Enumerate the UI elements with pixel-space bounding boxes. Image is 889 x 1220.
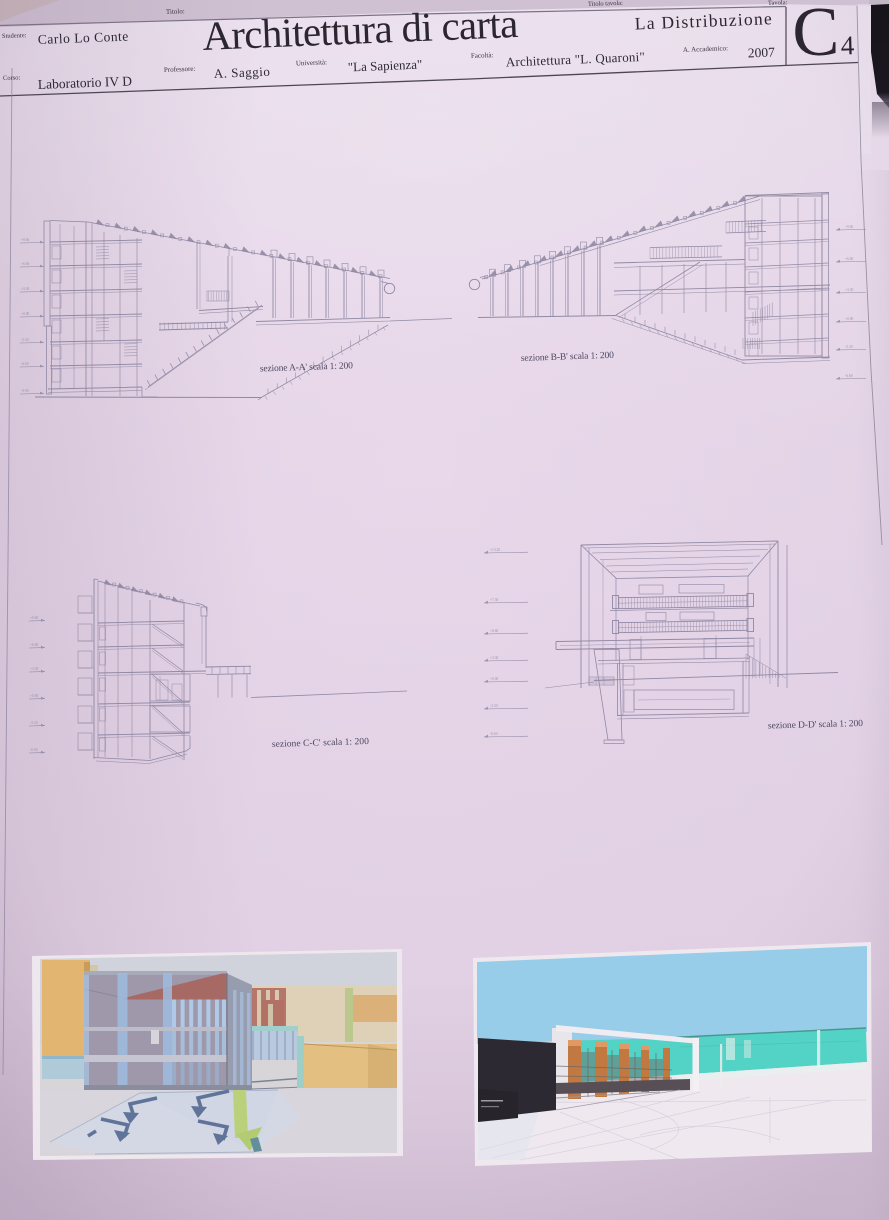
svg-text:-3.30: -3.30 <box>845 345 853 349</box>
svg-text:-6.60: -6.60 <box>490 732 498 736</box>
svg-text:+9.60: +9.60 <box>30 616 39 620</box>
svg-text:-3.30: -3.30 <box>490 704 498 708</box>
svg-text:+6.60: +6.60 <box>30 643 39 647</box>
svg-text:Tavola:: Tavola: <box>768 0 788 7</box>
svg-text:Corso:: Corso: <box>3 74 21 82</box>
svg-text:Titolo:: Titolo: <box>166 7 185 16</box>
svg-text:4: 4 <box>840 30 855 60</box>
svg-text:C: C <box>791 0 840 71</box>
svg-text:Titolo tavola:: Titolo tavola: <box>588 0 623 8</box>
svg-text:+0.00: +0.00 <box>845 317 854 321</box>
svg-text:+6.60: +6.60 <box>21 262 30 266</box>
svg-text:+0.00: +0.00 <box>30 694 39 698</box>
svg-text:Studente:: Studente: <box>2 32 27 40</box>
svg-text:+9.60: +9.60 <box>21 238 30 242</box>
svg-text:+7.30: +7.30 <box>490 598 499 602</box>
svg-text:-6.60: -6.60 <box>845 374 853 378</box>
svg-text:+3.30: +3.30 <box>30 667 39 671</box>
svg-text:+0.00: +0.00 <box>490 677 499 681</box>
svg-text:+6.60: +6.60 <box>490 629 499 633</box>
svg-text:Facoltà:: Facoltà: <box>471 51 494 60</box>
svg-text:-6.60: -6.60 <box>21 362 29 366</box>
svg-text:+3.30: +3.30 <box>490 656 499 660</box>
svg-text:-3.30: -3.30 <box>21 338 29 342</box>
svg-text:+13.20: +13.20 <box>490 548 500 552</box>
svg-text:-9.90: -9.90 <box>21 389 29 393</box>
svg-text:+3.30: +3.30 <box>21 287 30 291</box>
svg-text:2007: 2007 <box>748 44 776 60</box>
svg-text:-6.60: -6.60 <box>30 748 38 752</box>
svg-text:"La Sapienza": "La Sapienza" <box>348 57 423 75</box>
svg-text:Professore:: Professore: <box>164 65 196 74</box>
svg-text:-3.30: -3.30 <box>30 721 38 725</box>
svg-text:+3.30: +3.30 <box>845 288 854 292</box>
svg-text:+9.60: +9.60 <box>845 225 854 229</box>
svg-text:Università:: Università: <box>296 58 327 67</box>
svg-text:+6.60: +6.60 <box>845 257 854 261</box>
svg-text:+0.00: +0.00 <box>21 312 30 316</box>
svg-text:A. Saggio: A. Saggio <box>214 64 271 81</box>
